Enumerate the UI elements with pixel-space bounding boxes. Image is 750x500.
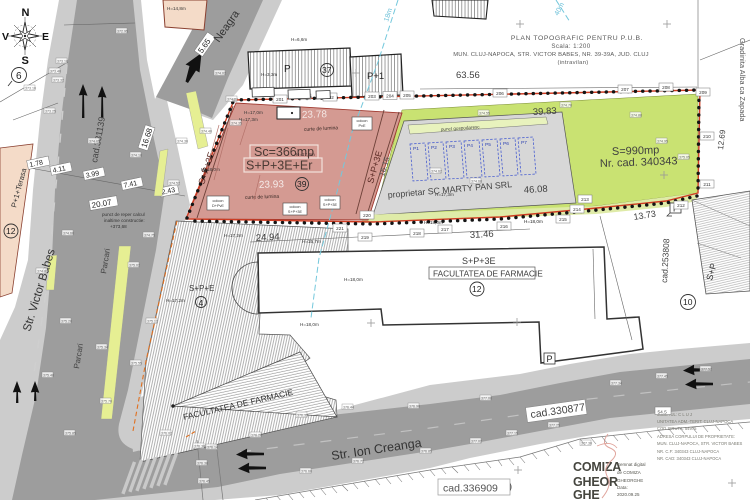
svg-text:375.02: 375.02 (129, 263, 140, 267)
svg-text:375.12: 375.12 (147, 319, 158, 323)
svg-text:215: 215 (559, 217, 567, 222)
svg-text:P+1: P+1 (367, 71, 384, 82)
svg-text:377.25: 377.25 (549, 423, 560, 427)
svg-text:376.44: 376.44 (343, 405, 354, 409)
svg-text:GHEORGHE: GHEORGHE (617, 478, 643, 483)
svg-text:GHE: GHE (573, 488, 600, 500)
svg-text:colcon: colcon (357, 119, 368, 123)
svg-text:211: 211 (703, 182, 711, 187)
svg-text:39.83: 39.83 (533, 106, 557, 118)
svg-text:217: 217 (441, 227, 449, 232)
svg-text:NR. C.F: 340343 CLUJ-NAPOCA: NR. C.F: 340343 CLUJ-NAPOCA (657, 449, 719, 454)
svg-text:MUN. CLUJ-NAPOCA, STR. VICT: MUN. CLUJ-NAPOCA, STR. VICTOR BABES, NR.… (453, 52, 649, 58)
svg-text:punct de reper calcul: punct de reper calcul (102, 212, 145, 217)
svg-text:214: 214 (573, 207, 581, 212)
svg-text:P4: P4 (467, 143, 473, 149)
svg-text:Scala: 1:200: Scala: 1:200 (551, 43, 590, 50)
svg-text:12: 12 (472, 284, 482, 294)
svg-text:H=3,3m: H=3,3m (261, 72, 277, 77)
svg-text:H=17,0m: H=17,0m (244, 110, 263, 115)
svg-text:COD SIRUTA: 54975: COD SIRUTA: 54975 (657, 426, 697, 431)
svg-text:374.95: 374.95 (657, 139, 668, 143)
svg-text:S+P+3E: S+P+3E (288, 210, 303, 214)
svg-text:P: P (547, 354, 553, 364)
svg-text:H=18,0m: H=18,0m (344, 277, 363, 282)
svg-text:374.22: 374.22 (227, 97, 238, 101)
svg-text:23.93: 23.93 (259, 179, 285, 191)
svg-text:curte de lumina: curte de lumina (245, 194, 280, 201)
svg-text:376.02: 376.02 (161, 431, 172, 435)
svg-text:220: 220 (363, 213, 371, 218)
svg-text:377.15: 377.15 (507, 431, 518, 435)
svg-text:PvE: PvE (359, 124, 366, 128)
svg-text:374.55: 374.55 (479, 111, 490, 115)
svg-text:375.34: 375.34 (97, 345, 108, 349)
svg-text:375.48: 375.48 (43, 373, 54, 377)
svg-text:colcon: colcon (290, 205, 301, 209)
svg-text:COMIZA: COMIZA (573, 460, 621, 474)
svg-text:216: 216 (500, 224, 508, 229)
svg-text:NR. CAD: 340343 CLUJ-NAPOCA: NR. CAD: 340343 CLUJ-NAPOCA (657, 456, 721, 461)
svg-text:374.18: 374.18 (131, 153, 142, 157)
svg-text:375.05: 375.05 (679, 155, 690, 159)
svg-text:219: 219 (361, 235, 369, 240)
svg-text:210: 210 (703, 134, 711, 139)
svg-text:372.95: 372.95 (117, 29, 128, 33)
svg-text:H=17,3m: H=17,3m (435, 192, 454, 197)
svg-text:373.40: 373.40 (50, 69, 61, 73)
svg-text:376.38: 376.38 (197, 461, 208, 465)
svg-text:374.88: 374.88 (631, 113, 642, 117)
svg-text:(intravilan): (intravilan) (557, 60, 588, 66)
svg-text:colcon: colcon (213, 199, 224, 203)
svg-text:375.70: 375.70 (101, 399, 112, 403)
svg-text:23.78: 23.78 (302, 109, 328, 121)
svg-text:H=18,0m: H=18,0m (300, 322, 319, 327)
svg-text:376.85: 376.85 (421, 449, 432, 453)
svg-text:H=18,0m: H=18,0m (524, 219, 543, 224)
svg-text:E: E (42, 31, 49, 43)
svg-text:373.32: 373.32 (53, 78, 64, 82)
svg-text:373.25: 373.25 (45, 109, 56, 113)
svg-text:207: 207 (621, 87, 629, 92)
svg-text:37: 37 (322, 65, 332, 75)
svg-text:374.75: 374.75 (144, 233, 155, 237)
svg-text:374.52: 374.52 (169, 181, 180, 185)
svg-text:377.02: 377.02 (471, 439, 482, 443)
svg-text:203: 203 (368, 94, 376, 99)
svg-text:4: 4 (199, 298, 204, 308)
svg-text:de COMIZA: de COMIZA (617, 470, 641, 475)
svg-text:P: P (284, 64, 291, 75)
svg-text:201: 201 (276, 97, 284, 102)
svg-text:2020.09.25: 2020.09.25 (617, 492, 640, 497)
svg-text:D+PvE: D+PvE (212, 204, 224, 208)
svg-text:+373,68: +373,68 (110, 224, 127, 229)
svg-text:GHEOR: GHEOR (573, 475, 618, 489)
svg-text:374.35: 374.35 (231, 121, 242, 125)
svg-text:39: 39 (297, 179, 307, 189)
svg-text:PLAN TOPOGRAFIC PENTRU P.U.: PLAN TOPOGRAFIC PENTRU P.U.B. (511, 35, 643, 42)
svg-text:H=18,0m: H=18,0m (424, 220, 443, 225)
svg-text:376.30: 376.30 (194, 444, 205, 448)
svg-text:H=14,8m: H=14,8m (167, 6, 186, 11)
svg-text:63.56: 63.56 (456, 70, 480, 81)
svg-text:MUN. CLUJ-NAPOCA, STR. VICTOR: MUN. CLUJ-NAPOCA, STR. VICTOR BABES (657, 441, 743, 446)
svg-text:374.68: 374.68 (471, 179, 482, 183)
svg-text:376.72: 376.72 (353, 459, 364, 463)
svg-text:31.46: 31.46 (470, 229, 494, 241)
svg-text:376.45: 376.45 (199, 479, 210, 483)
svg-text:P5: P5 (485, 142, 491, 148)
svg-text:374.70: 374.70 (561, 103, 572, 107)
svg-text:218: 218 (413, 231, 421, 236)
svg-text:205: 205 (403, 93, 411, 98)
svg-text:206: 206 (496, 91, 504, 96)
svg-text:Data:: Data: (617, 485, 628, 490)
svg-text:377.45: 377.45 (657, 374, 668, 378)
svg-text:colcon: colcon (325, 198, 336, 202)
svg-text:376.90: 376.90 (409, 404, 420, 408)
svg-text:H=17,2m: H=17,2m (224, 233, 243, 238)
svg-text:46.08: 46.08 (524, 184, 548, 196)
svg-text:UNITATEA ADM.-TERIT: CLUJ-NAPO: UNITATEA ADM.-TERIT: CLUJ-NAPOCA (657, 419, 733, 424)
svg-text:204: 204 (386, 94, 394, 99)
svg-text:10: 10 (683, 297, 693, 307)
svg-text:P6: P6 (503, 141, 509, 147)
svg-text:P2: P2 (431, 145, 437, 151)
svg-text:373.10: 373.10 (25, 86, 36, 90)
svg-text:P3: P3 (449, 144, 455, 150)
svg-text:375.55: 375.55 (131, 361, 142, 365)
svg-text:FACULTATEA DE FARMACIE: FACULTATEA DE FARMACIE (433, 269, 543, 279)
svg-text:S+P+E: S+P+E (189, 284, 214, 293)
svg-text:376.35: 376.35 (297, 413, 308, 417)
svg-text:373.18: 373.18 (57, 59, 68, 63)
svg-text:H=6,6m: H=6,6m (291, 37, 307, 42)
svg-text:24.94: 24.94 (256, 232, 280, 244)
svg-text:374.30: 374.30 (177, 139, 188, 143)
svg-text:S+P+3E+Er: S+P+3E+Er (246, 159, 312, 173)
svg-text:inaltime constructie:: inaltime constructie: (104, 218, 145, 223)
svg-text:54.5: 54.5 (658, 409, 668, 415)
svg-text:213: 213 (581, 197, 589, 202)
svg-text:S+P+3E: S+P+3E (323, 203, 338, 207)
svg-text:Semnat digital: Semnat digital (617, 462, 646, 467)
svg-text:cad.336909: cad.336909 (443, 483, 498, 495)
svg-text:P1: P1 (413, 146, 419, 152)
svg-text:212: 212 (677, 203, 685, 208)
svg-text:377.34: 377.34 (611, 381, 622, 385)
svg-text:374.82: 374.82 (37, 269, 48, 273)
svg-text:374.40: 374.40 (201, 129, 212, 133)
svg-text:374.05: 374.05 (89, 139, 100, 143)
svg-text:H=17,2m: H=17,2m (166, 298, 185, 303)
svg-text:377.08: 377.08 (481, 396, 492, 400)
svg-text:6: 6 (16, 71, 22, 82)
svg-text:12: 12 (6, 226, 16, 236)
svg-text:209: 209 (699, 90, 707, 95)
svg-text:376.60: 376.60 (301, 469, 312, 473)
svg-text:P7: P7 (521, 140, 527, 146)
svg-text:S: S (22, 55, 29, 67)
svg-text:374.60: 374.60 (63, 231, 74, 235)
svg-text:375.85: 375.85 (65, 431, 76, 435)
svg-text:376.20: 376.20 (251, 433, 262, 437)
svg-text:375.20: 375.20 (61, 319, 72, 323)
svg-text:H=17,0m: H=17,0m (296, 152, 315, 157)
svg-text:ADRESA CORPULUI DE PROPRIETATE: ADRESA CORPULUI DE PROPRIETATE: (657, 434, 735, 439)
svg-text:374.62: 374.62 (431, 169, 442, 173)
svg-text:208: 208 (662, 85, 670, 90)
svg-text:374.02: 374.02 (215, 71, 226, 75)
svg-text:V: V (2, 31, 9, 43)
svg-text:S+P+3E: S+P+3E (462, 256, 496, 266)
svg-text:N: N (22, 7, 30, 19)
svg-text:377.52: 377.52 (701, 367, 712, 371)
svg-text:Gradinita Alba ca Zapada: Gradinita Alba ca Zapada (738, 38, 747, 122)
svg-text:376.14: 376.14 (207, 445, 218, 449)
svg-text:221: 221 (336, 226, 344, 231)
svg-text:H=15,7m: H=15,7m (302, 239, 321, 244)
